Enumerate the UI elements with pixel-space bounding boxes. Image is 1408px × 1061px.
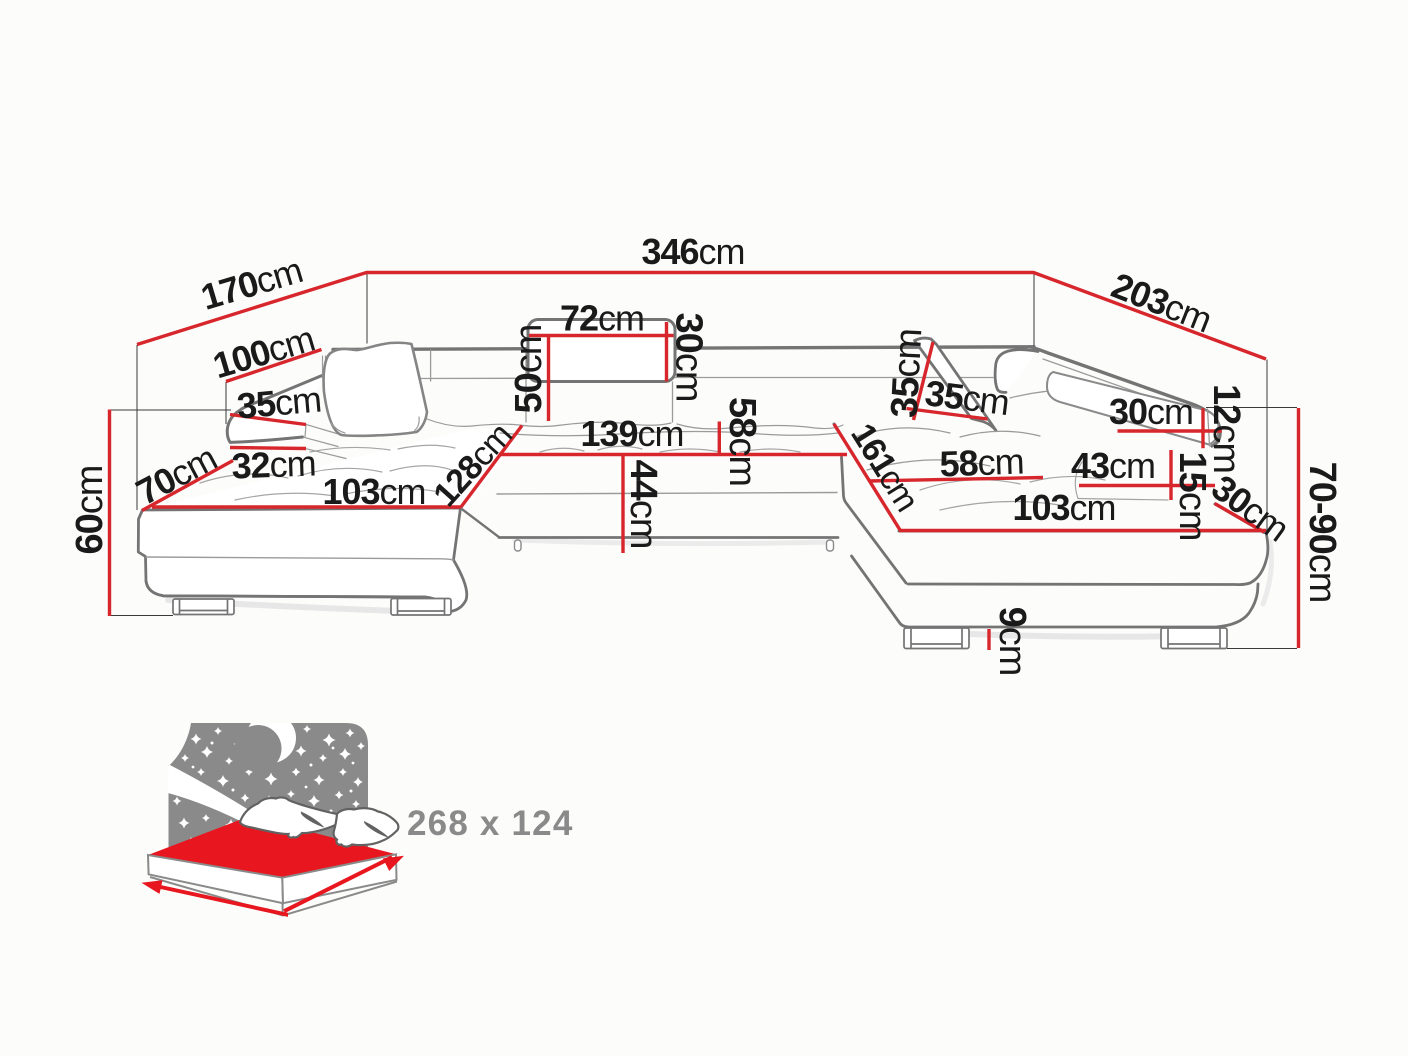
svg-text:30cm: 30cm — [1109, 391, 1193, 432]
svg-text:43cm: 43cm — [1071, 445, 1155, 486]
svg-text:35cm: 35cm — [235, 378, 322, 426]
svg-text:9cm: 9cm — [991, 607, 1033, 676]
svg-text:139cm: 139cm — [580, 413, 683, 454]
svg-text:103cm: 103cm — [1012, 487, 1115, 528]
svg-text:30cm: 30cm — [668, 313, 710, 402]
svg-text:103cm: 103cm — [322, 471, 425, 512]
svg-text:32cm: 32cm — [231, 443, 316, 487]
svg-text:72cm: 72cm — [560, 298, 644, 339]
svg-text:70-90cm: 70-90cm — [1301, 462, 1343, 603]
svg-text:60cm: 60cm — [69, 466, 111, 555]
svg-text:50cm: 50cm — [508, 325, 550, 414]
svg-text:58cm: 58cm — [721, 397, 763, 486]
svg-text:346cm: 346cm — [641, 231, 744, 272]
svg-text:44cm: 44cm — [622, 460, 664, 549]
svg-text:58cm: 58cm — [939, 441, 1024, 485]
svg-text:268 x 124: 268 x 124 — [407, 804, 574, 843]
